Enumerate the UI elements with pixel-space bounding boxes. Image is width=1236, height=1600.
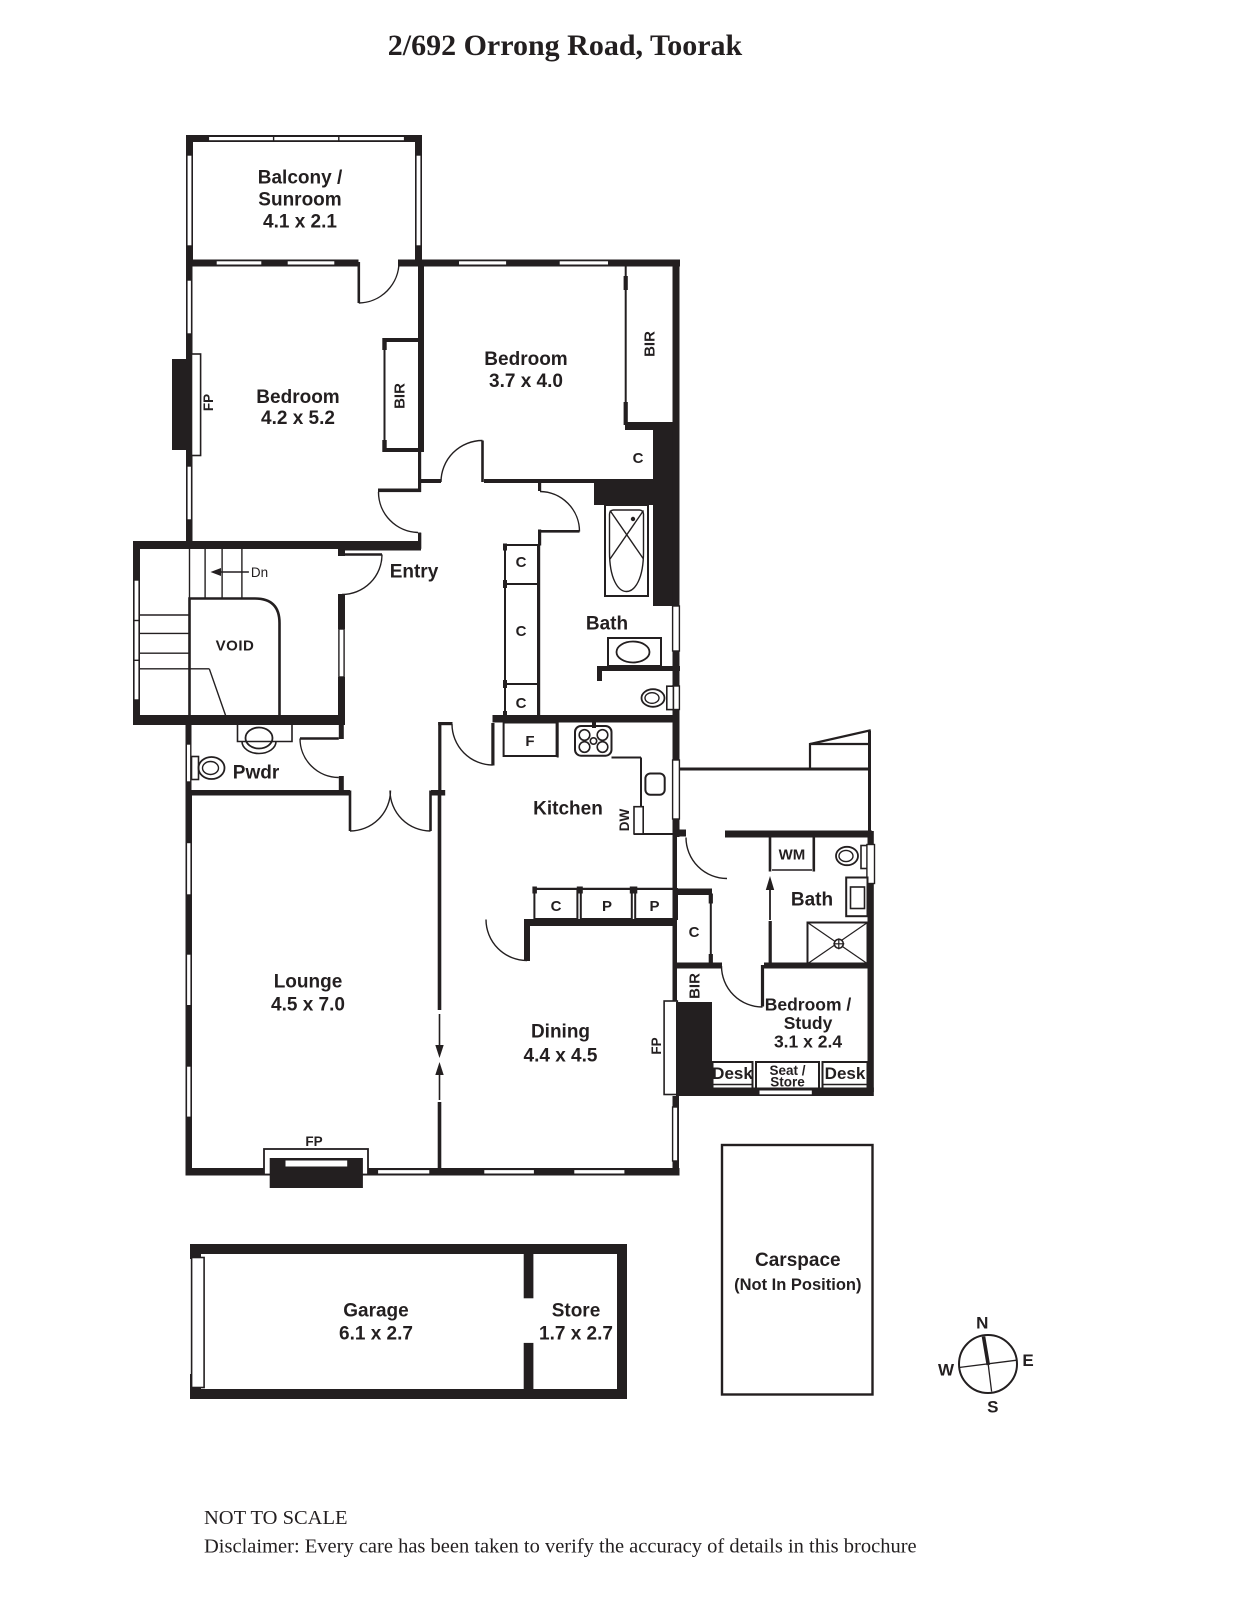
svg-text:4.4 x 4.5: 4.4 x 4.5 xyxy=(524,1046,598,1067)
svg-text:4.5 x 7.0: 4.5 x 7.0 xyxy=(271,995,345,1016)
svg-text:Balcony /: Balcony / xyxy=(258,168,343,189)
svg-text:FP: FP xyxy=(649,1037,664,1054)
svg-text:Bath: Bath xyxy=(791,890,833,911)
svg-text:C: C xyxy=(633,450,644,467)
svg-text:Lounge: Lounge xyxy=(274,972,343,993)
svg-text:BIR: BIR xyxy=(391,383,408,409)
svg-text:C: C xyxy=(689,924,700,941)
svg-text:Garage: Garage xyxy=(343,1301,408,1322)
svg-text:6.1 x 2.7: 6.1 x 2.7 xyxy=(339,1324,413,1345)
svg-text:Study: Study xyxy=(784,1013,833,1033)
svg-text:VOID: VOID xyxy=(216,638,255,655)
svg-text:C: C xyxy=(551,898,562,915)
svg-text:Bedroom: Bedroom xyxy=(484,349,567,370)
svg-text:Entry: Entry xyxy=(390,562,439,583)
svg-text:Carspace: Carspace xyxy=(755,1250,841,1271)
svg-text:FP: FP xyxy=(201,394,216,411)
svg-text:FP: FP xyxy=(305,1134,322,1149)
svg-text:4.1 x 2.1: 4.1 x 2.1 xyxy=(263,212,337,233)
svg-text:P: P xyxy=(649,898,659,915)
svg-text:Bedroom /: Bedroom / xyxy=(765,995,852,1015)
svg-text:BIR: BIR xyxy=(686,973,703,999)
svg-text:W: W xyxy=(938,1361,955,1380)
svg-text:3.7 x 4.0: 3.7 x 4.0 xyxy=(489,371,563,392)
svg-text:Store: Store xyxy=(770,1075,805,1090)
svg-text:Desk: Desk xyxy=(825,1064,866,1083)
svg-text:Bath: Bath xyxy=(586,614,628,635)
svg-text:Sunroom: Sunroom xyxy=(258,190,341,211)
svg-text:Bedroom: Bedroom xyxy=(256,387,339,408)
svg-text:P: P xyxy=(602,898,612,915)
svg-text:Dining: Dining xyxy=(531,1022,590,1043)
svg-text:F: F xyxy=(525,733,534,750)
svg-text:NOT TO SCALE: NOT TO SCALE xyxy=(204,1507,348,1529)
svg-text:Pwdr: Pwdr xyxy=(233,763,280,784)
svg-text:3.1 x 2.4: 3.1 x 2.4 xyxy=(774,1032,842,1052)
svg-text:E: E xyxy=(1022,1351,1033,1370)
svg-text:Disclaimer: Every care has bee: Disclaimer: Every care has been taken to… xyxy=(204,1536,917,1558)
svg-text:Desk: Desk xyxy=(712,1064,753,1083)
svg-text:Store: Store xyxy=(552,1301,601,1322)
svg-text:BIR: BIR xyxy=(641,331,658,357)
svg-text:C: C xyxy=(516,695,527,712)
svg-text:DW: DW xyxy=(617,809,632,832)
svg-text:1.7 x 2.7: 1.7 x 2.7 xyxy=(539,1324,613,1345)
svg-text:C: C xyxy=(516,623,527,640)
svg-text:N: N xyxy=(976,1314,988,1333)
svg-text:4.2 x 5.2: 4.2 x 5.2 xyxy=(261,408,335,429)
svg-text:S: S xyxy=(987,1398,998,1417)
svg-text:Dn: Dn xyxy=(251,565,268,580)
svg-text:(Not In Position): (Not In Position) xyxy=(734,1276,861,1294)
svg-text:Kitchen: Kitchen xyxy=(533,799,603,820)
svg-text:WM: WM xyxy=(779,847,806,864)
svg-text:C: C xyxy=(516,554,527,571)
svg-text:2/692 Orrong Road, Toorak: 2/692 Orrong Road, Toorak xyxy=(388,29,743,62)
